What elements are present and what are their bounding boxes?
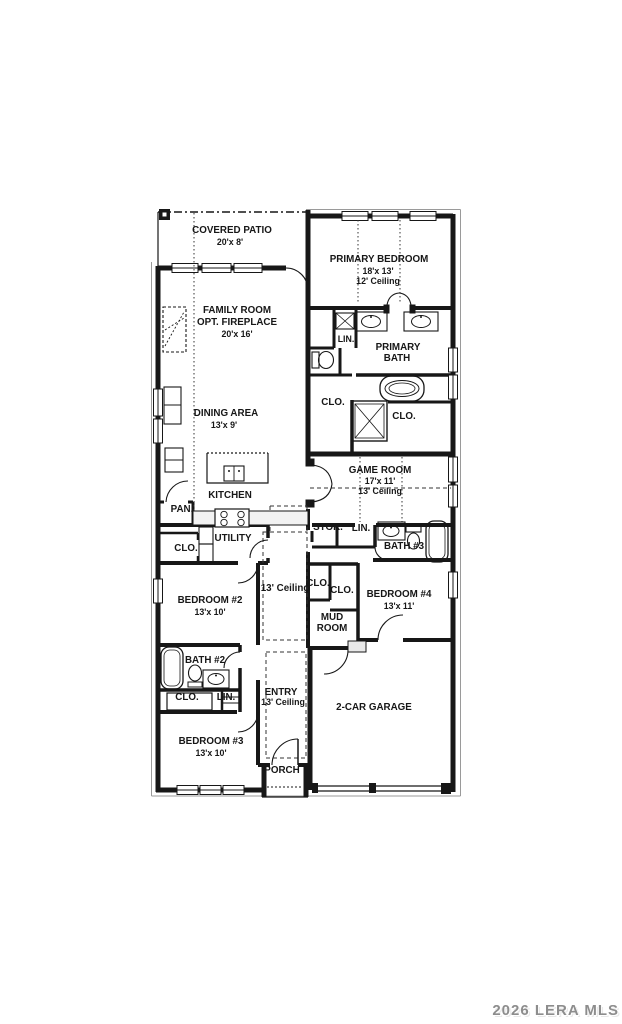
room-label-dining-area: DINING AREA bbox=[194, 409, 258, 419]
room-label-garage: 2-CAR GARAGE bbox=[336, 703, 412, 713]
room-label-primary-bedroom: PRIMARY BEDROOM bbox=[330, 255, 429, 265]
label-clo-bed2: CLO. bbox=[175, 693, 198, 703]
room-label-mud-room: MUD bbox=[321, 613, 343, 623]
room-dims-bedroom-3: 13'x 10' bbox=[195, 749, 226, 758]
room-label-covered-patio: COVERED PATIO bbox=[192, 226, 272, 236]
floorplan-image: COVERED PATIO 20'x 8' PRIMARY BEDROOM 18… bbox=[0, 0, 622, 1024]
label-storage: STOR. bbox=[313, 523, 343, 533]
room-dims-bedroom-4: 13'x 11' bbox=[384, 602, 415, 611]
room-dims-dining-area: 13'x 9' bbox=[211, 421, 237, 430]
room-dims-family-room: 20'x 16' bbox=[221, 330, 252, 339]
room-ceiling-primary-bedroom: 12' Ceiling bbox=[356, 277, 400, 286]
room-label-bedroom-4: BEDROOM #4 bbox=[367, 590, 432, 600]
label-linen-hall: LIN. bbox=[352, 524, 371, 534]
label-clo-bath-right: CLO. bbox=[392, 412, 415, 422]
room-dims-bedroom-2: 13'x 10' bbox=[194, 608, 225, 617]
room-ceiling-entry: 13' Ceiling bbox=[261, 698, 305, 707]
room-label-utility: UTILITY bbox=[214, 534, 251, 544]
room-label-bedroom-3: BEDROOM #3 bbox=[179, 737, 244, 747]
room-label-primary-bath-2: BATH bbox=[384, 354, 410, 364]
label-lin-primary: LIN. bbox=[338, 335, 355, 344]
room-label-bath-2: BATH #2 bbox=[185, 656, 225, 666]
room-ceiling-game-room: 13' Ceiling bbox=[358, 487, 402, 496]
room-label-family-room: FAMILY ROOM bbox=[203, 306, 271, 316]
label-clo-utility: CLO. bbox=[174, 544, 197, 554]
label-clo-bath-left: CLO. bbox=[321, 398, 344, 408]
label-hall-ceiling: 13' Ceiling bbox=[261, 584, 310, 594]
room-dims-covered-patio: 20'x 8' bbox=[217, 238, 243, 247]
fixtures bbox=[161, 307, 448, 710]
mls-watermark: 2026 LERA MLS bbox=[492, 1002, 619, 1019]
ceiling-guides bbox=[194, 213, 451, 758]
label-clo-bed4-a: CLO. bbox=[306, 579, 329, 589]
label-lin-bed2: LIN. bbox=[217, 693, 236, 703]
floorplan-drawing bbox=[0, 0, 622, 1024]
room-label-family-room-fireplace: OPT. FIREPLACE bbox=[197, 318, 277, 328]
room-dims-game-room: 17'x 11' bbox=[365, 477, 396, 486]
label-pantry: PAN. bbox=[171, 505, 194, 515]
room-label-porch: PORCH bbox=[264, 766, 299, 776]
label-clo-bed4-b: CLO. bbox=[330, 586, 353, 596]
room-label-bath-3: BATH #3 bbox=[384, 542, 424, 552]
room-label-primary-bath: PRIMARY bbox=[376, 343, 421, 353]
garage-front bbox=[262, 783, 451, 797]
room-label-game-room: GAME ROOM bbox=[349, 466, 412, 476]
room-label-kitchen: KITCHEN bbox=[208, 491, 252, 501]
room-label-mud-room-2: ROOM bbox=[317, 624, 347, 634]
room-label-bedroom-2: BEDROOM #2 bbox=[178, 596, 243, 606]
room-dims-primary-bedroom: 18'x 13' bbox=[362, 267, 393, 276]
